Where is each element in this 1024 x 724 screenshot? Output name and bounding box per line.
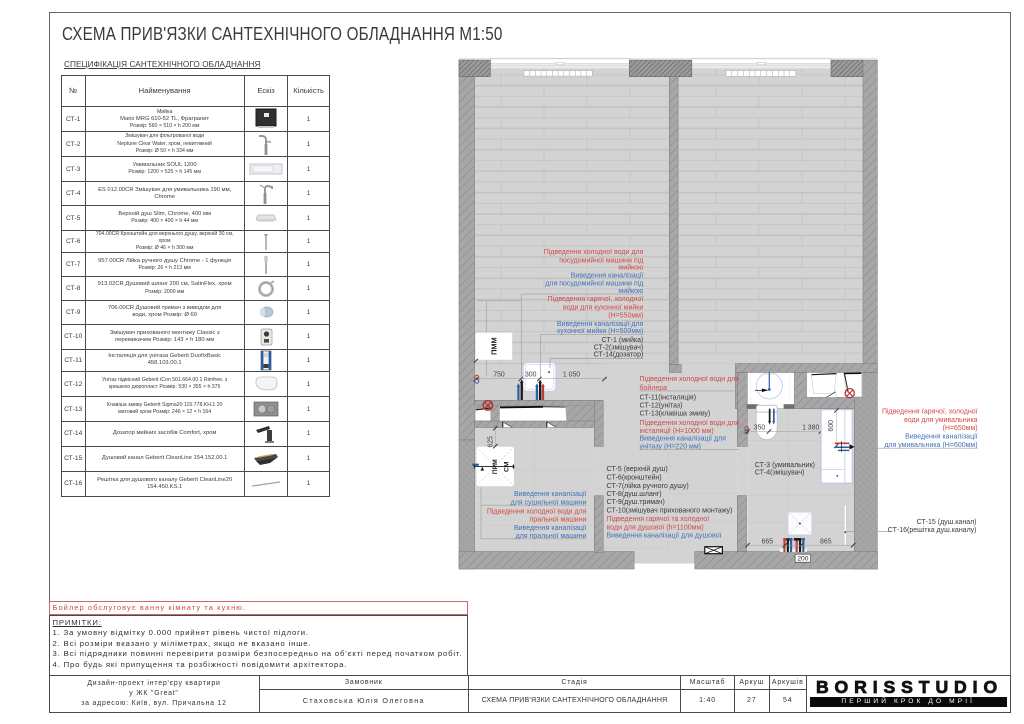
svg-text:посудомийної машини під: посудомийної машини під [559,256,643,264]
svg-text:мийкою: мийкою [618,287,643,295]
svg-text:для сушильної машини: для сушильної машини [511,499,587,506]
svg-text:СТ-11(інсталяція): СТ-11(інсталяція) [640,394,697,402]
svg-text:СТ-3 (умивальник): СТ-3 (умивальник) [755,462,815,469]
svg-text:Підведення холодної води для: Підведення холодної води для [640,375,740,383]
svg-text:Виведення каналізації: Виведення каналізації [514,490,587,498]
svg-text:Підведення холодної води для: Підведення холодної води для [640,419,740,427]
svg-text:865: 865 [820,539,832,546]
svg-text:СТ-13(клавіша змиву): СТ-13(клавіша змиву) [640,409,711,417]
svg-text:СТ-10(змішувач прихованого мон: СТ-10(змішувач прихованого монтажу) [607,506,733,514]
svg-text:унітазу (Н=220 мм): унітазу (Н=220 мм) [640,442,702,450]
svg-text:Виведення каналізації для: Виведення каналізації для [557,320,644,328]
svg-text:для посудомийної машини під: для посудомийної машини під [545,280,643,288]
svg-text:Виведення каналізації для: Виведення каналізації для [640,434,727,442]
svg-text:Підведення холодної води для: Підведення холодної води для [487,507,587,515]
svg-text:води для кухонної мийки: води для кухонної мийки [563,304,643,312]
svg-text:ПММ: ПММ [490,337,499,355]
svg-text:665: 665 [762,539,774,546]
svg-text:СТ-14(дозатор): СТ-14(дозатор) [594,352,644,359]
svg-text:для пральної машини: для пральної машини [516,533,587,540]
svg-text:Виведення каналізації: Виведення каналізації [514,524,587,532]
svg-text:(Н=550мм): (Н=550мм) [608,313,643,320]
svg-text:300: 300 [525,372,537,379]
svg-text:бойлера: бойлера [640,384,668,392]
svg-text:Виведення каналізації: Виведення каналізації [905,433,978,441]
svg-text:1 050: 1 050 [563,372,580,379]
svg-text:350: 350 [754,425,766,432]
svg-text:Підведення холодної води для: Підведення холодної води для [544,248,644,256]
svg-text:625: 625 [487,436,494,448]
svg-text:для умивальника (Н=600мм): для умивальника (Н=600мм) [884,442,977,449]
svg-text:СТ-8(душ.шланг): СТ-8(душ.шланг) [607,491,662,498]
svg-text:СТ-7(лійка ручного душу): СТ-7(лійка ручного душу) [607,482,689,490]
svg-text:СТ-5 (верхній душ): СТ-5 (верхній душ) [607,465,668,473]
svg-text:СТ-2(змішувач): СТ-2(змішувач) [594,343,644,351]
svg-text:200: 200 [797,555,808,562]
svg-text:Підведення гарячої та холодної: Підведення гарячої та холодної [607,515,710,523]
svg-text:води для душової (h=1100мм): води для душової (h=1100мм) [607,525,704,532]
svg-text:СТ-6(кронштейн): СТ-6(кронштейн) [607,474,662,482]
svg-text:СТ-1 (мийка): СТ-1 (мийка) [602,336,644,344]
svg-text:Виведення каналізації: Виведення каналізації [571,272,644,280]
svg-text:СТ-16(решітка душ.каналу): СТ-16(решітка душ.каналу) [888,526,977,534]
svg-text:СТ-9(душ.тримач): СТ-9(душ.тримач) [607,499,665,506]
svg-text:Підведення гарячої, холодної: Підведення гарячої, холодної [882,408,978,416]
svg-text:мийкою: мийкою [618,264,643,272]
svg-text:600: 600 [828,420,835,432]
svg-text:СТ-12(унітаз): СТ-12(унітаз) [640,402,683,410]
svg-text:інсталяції (Н=1000 мм): інсталяції (Н=1000 мм) [640,427,714,435]
svg-text:води для умивальника: води для умивальника [904,417,978,424]
svg-text:кухонної мийки (Н=500мм): кухонної мийки (Н=500мм) [557,327,643,335]
svg-text:СТ-4(змішувач): СТ-4(змішувач) [755,469,805,477]
svg-text:пральної машини: пральної машини [530,517,587,524]
svg-text:(Н=650мм): (Н=650мм) [942,425,977,432]
svg-text:СТ-15 (душ.канал): СТ-15 (душ.канал) [917,519,977,526]
svg-text:Виведення каналізації для душо: Виведення каналізації для душової [607,531,722,539]
svg-text:1 380: 1 380 [802,425,819,432]
svg-text:750: 750 [493,372,505,379]
svg-text:Підведення гарячої, холодної: Підведення гарячої, холодної [548,295,644,303]
